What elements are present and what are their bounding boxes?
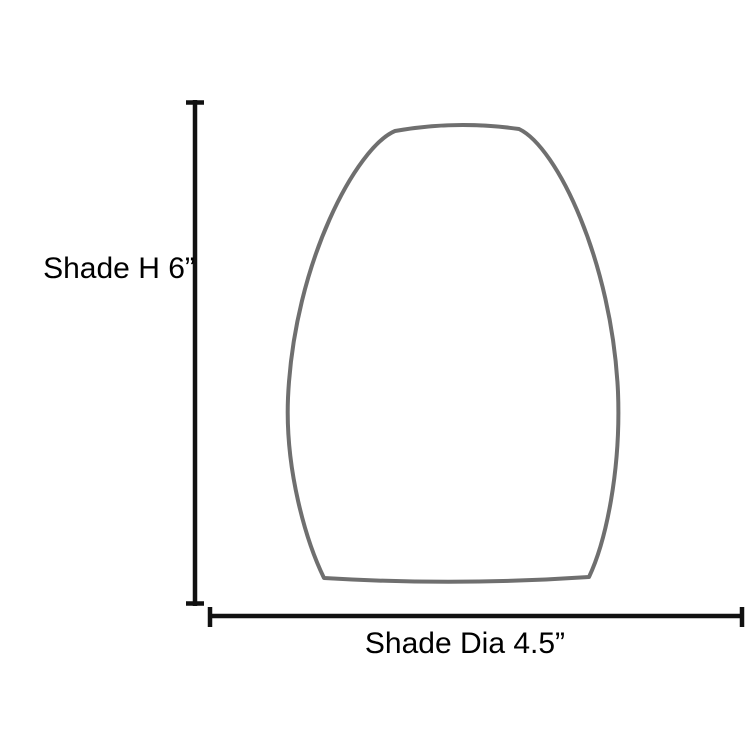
dimension-diagram: Shade H 6” Shade Dia 4.5” (0, 0, 750, 750)
diameter-dimension-line (208, 607, 744, 627)
height-dimension-line (186, 100, 204, 606)
shade-height-label: Shade H 6” (19, 253, 219, 285)
shade-outline (288, 125, 619, 582)
shade-diameter-label: Shade Dia 4.5” (315, 627, 615, 661)
